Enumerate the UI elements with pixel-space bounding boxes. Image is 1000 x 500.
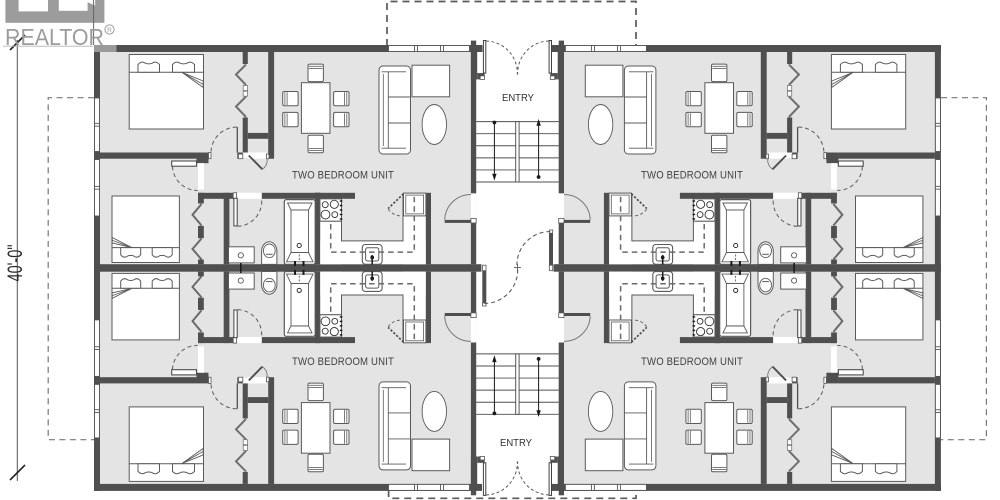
- svg-text:40'-0": 40'-0": [4, 245, 27, 282]
- svg-text:R: R: [107, 27, 112, 34]
- svg-text:TWO BEDROOM UNIT: TWO BEDROOM UNIT: [292, 170, 394, 182]
- svg-text:TWO BEDROOM UNIT: TWO BEDROOM UNIT: [641, 170, 743, 182]
- svg-text:ENTRY: ENTRY: [502, 92, 534, 104]
- svg-text:TWO BEDROOM UNIT: TWO BEDROOM UNIT: [292, 356, 394, 368]
- svg-text:ENTRY: ENTRY: [500, 437, 532, 449]
- svg-text:TWO BEDROOM UNIT: TWO BEDROOM UNIT: [641, 356, 743, 368]
